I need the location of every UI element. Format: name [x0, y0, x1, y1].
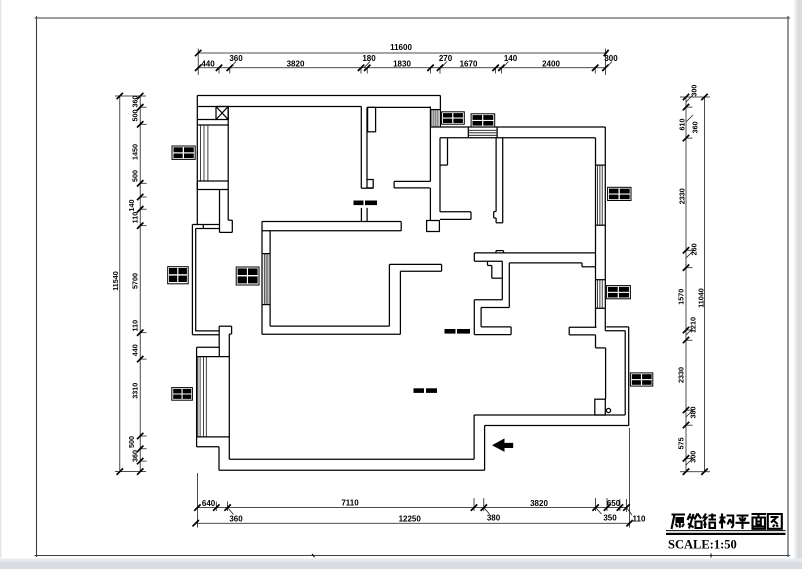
svg-text:300: 300 — [689, 451, 698, 463]
svg-text:3820: 3820 — [530, 499, 548, 508]
svg-text:260: 260 — [690, 243, 699, 255]
svg-text:12250: 12250 — [399, 515, 422, 524]
svg-text:300: 300 — [604, 54, 618, 63]
svg-text:360: 360 — [131, 450, 140, 462]
svg-text:380: 380 — [689, 407, 698, 419]
svg-text:140: 140 — [504, 54, 518, 63]
svg-text:500: 500 — [131, 170, 140, 182]
svg-text:440: 440 — [131, 344, 140, 356]
svg-text:1670: 1670 — [460, 59, 478, 68]
svg-text:140: 140 — [127, 200, 136, 212]
svg-text:180: 180 — [362, 54, 376, 63]
svg-text:270: 270 — [439, 54, 453, 63]
svg-text:640: 640 — [202, 499, 216, 508]
svg-text:610: 610 — [678, 119, 687, 131]
svg-text:2400: 2400 — [542, 59, 560, 68]
svg-text:2330: 2330 — [678, 188, 687, 204]
svg-text:440: 440 — [201, 59, 215, 68]
svg-text:650: 650 — [607, 499, 621, 508]
svg-text:11600: 11600 — [390, 43, 412, 52]
svg-text:360: 360 — [229, 514, 243, 523]
svg-text:1450: 1450 — [131, 144, 140, 160]
svg-text:360: 360 — [691, 121, 700, 133]
svg-text:3820: 3820 — [287, 59, 305, 68]
svg-text:500: 500 — [127, 436, 136, 448]
svg-text:300: 300 — [690, 85, 699, 97]
svg-text:110: 110 — [131, 212, 140, 224]
svg-text:2330: 2330 — [677, 367, 686, 383]
svg-text:5700: 5700 — [131, 273, 140, 289]
svg-text:360: 360 — [131, 96, 140, 108]
svg-text:11540: 11540 — [111, 271, 120, 291]
svg-text:1830: 1830 — [393, 59, 411, 68]
svg-text:110: 110 — [633, 515, 646, 524]
svg-text:110: 110 — [131, 320, 140, 332]
svg-text:3310: 3310 — [131, 383, 140, 399]
svg-text:380: 380 — [487, 514, 501, 523]
svg-text:7110: 7110 — [341, 498, 359, 507]
svg-text:11040: 11040 — [696, 288, 705, 308]
svg-text:575: 575 — [677, 437, 686, 449]
svg-text:1210: 1210 — [689, 317, 698, 333]
svg-text:500: 500 — [131, 110, 140, 122]
svg-text:350: 350 — [603, 514, 617, 523]
svg-text:SCALE:1:50: SCALE:1:50 — [668, 538, 737, 552]
svg-text:1570: 1570 — [677, 289, 686, 305]
svg-text:360: 360 — [229, 54, 243, 63]
